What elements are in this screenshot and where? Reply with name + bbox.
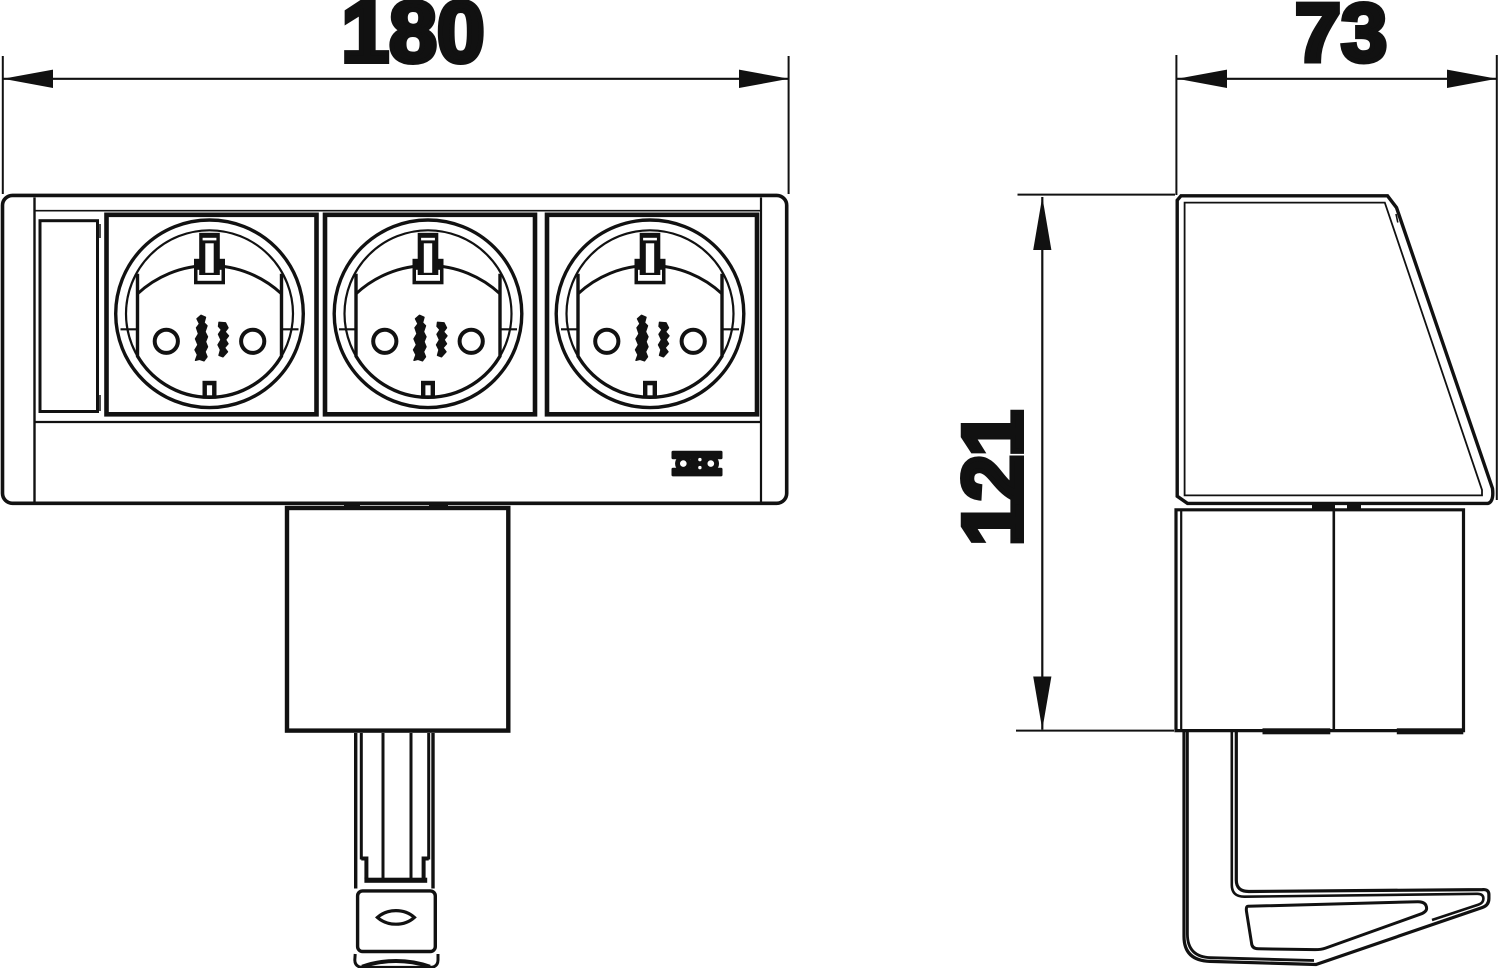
svg-text:180: 180 [341,0,485,81]
svg-text:73: 73 [1295,0,1387,79]
svg-text:121: 121 [946,412,1040,546]
